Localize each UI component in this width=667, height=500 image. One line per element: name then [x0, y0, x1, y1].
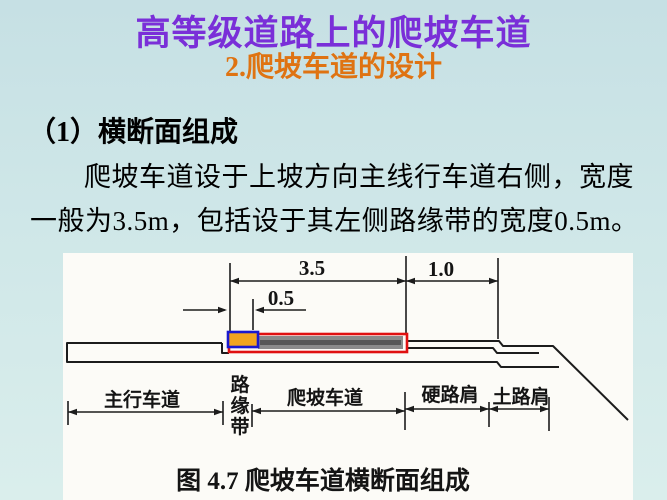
- label-soil-shoulder: 土路肩: [471, 382, 571, 409]
- dimension-curb-strip-width: 0.5: [259, 286, 303, 311]
- label-curb-strip: 路缘带: [229, 375, 251, 438]
- label-climbing-lane: 爬坡车道: [265, 383, 385, 410]
- paragraph-line-1: 爬坡车道设于上坡方向主线行车道右侧，宽度: [30, 155, 667, 194]
- climbing-lane-surface-streak: [260, 340, 401, 345]
- slide-subtitle: 2.爬坡车道的设计: [0, 45, 667, 85]
- figure-caption: 图 4.7 爬坡车道横断面组成: [163, 461, 483, 497]
- paragraph-line-2: 一般为3.5m，包括设于其左侧路缘带的宽度0.5m。: [30, 199, 650, 238]
- section-heading: （1）横断面组成: [28, 110, 238, 150]
- cross-section-figure: 3.5 1.0 0.5 主行车道 路缘带 爬坡车道 硬路肩 土路肩 图 4.7 …: [63, 253, 633, 500]
- curb-strip-highlight-box: [228, 332, 258, 347]
- slide: 高等级道路上的爬坡车道 2.爬坡车道的设计 （1）横断面组成 爬坡车道设于上坡方…: [0, 0, 667, 500]
- label-main-lane: 主行车道: [82, 385, 202, 412]
- dimension-hard-shoulder-width: 1.0: [419, 257, 463, 282]
- dimension-climbing-lane-width: 3.5: [290, 256, 334, 281]
